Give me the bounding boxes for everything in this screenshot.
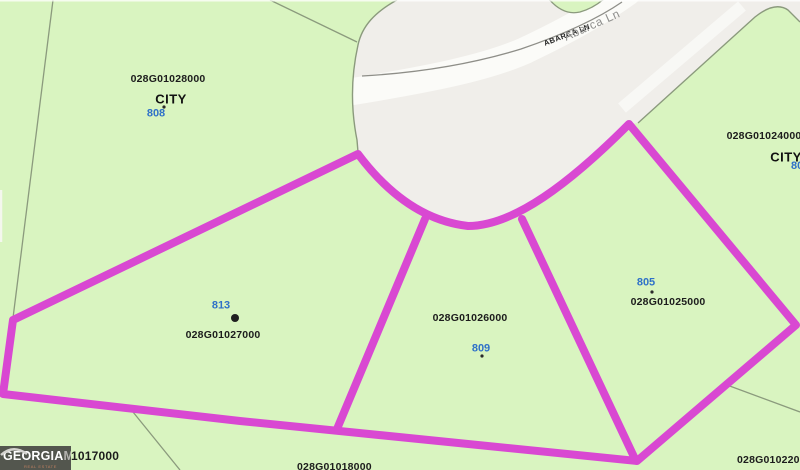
lot-number-808: 808 [147, 109, 165, 120]
parcel-id-028G01018000-clipped: 028G01018000 [297, 462, 372, 470]
marker-lot-805 [650, 290, 653, 293]
top-border-artifact [0, 0, 800, 2]
parcel-id-1017000-partial: 1017000 [71, 450, 119, 462]
parcel-id-028G01028000: 028G01028000 [131, 74, 206, 85]
lot-number-813: 813 [212, 301, 230, 312]
watermark-brand-mls: MLS [63, 449, 71, 463]
lot-number-809: 809 [472, 344, 490, 355]
parcel-id-028G01025000: 028G01025000 [631, 297, 706, 308]
watermark-roof-icon [0, 446, 28, 456]
marker-lot-809 [480, 354, 483, 357]
parcel-id-028G01027000: 028G01027000 [186, 330, 261, 341]
map-canvas [0, 0, 800, 470]
marker-lot-813 [231, 314, 239, 322]
parcel-map: ABARCA LN Abarca Ln 028G01028000 CITY 80… [0, 0, 800, 470]
parcel-id-028G01022000-clipped: 028G01022000 [737, 455, 800, 466]
zone-label-city-nw: CITY [155, 93, 187, 106]
parcel-id-028G01026000: 028G01026000 [433, 313, 508, 324]
lot-number-805: 805 [637, 278, 655, 289]
watermark-tagline: REAL ESTATE SERVICES [24, 464, 71, 470]
parcel-id-028G01024000: 028G01024000 [727, 131, 800, 142]
georgia-mls-watermark: GEORGIAMLS REAL ESTATE SERVICES [0, 446, 71, 470]
lot-number-806-clipped: 806 [791, 161, 800, 172]
